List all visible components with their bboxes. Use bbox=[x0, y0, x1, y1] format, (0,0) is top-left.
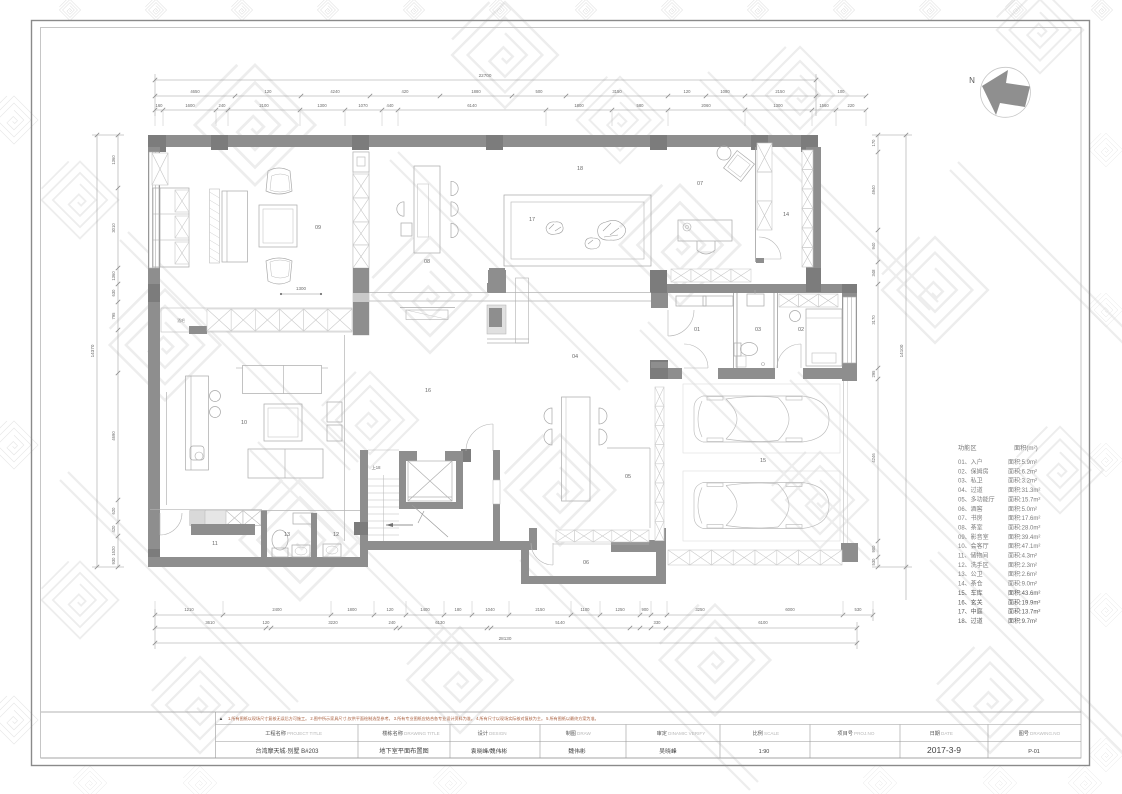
svg-text:3250: 3250 bbox=[695, 607, 705, 612]
svg-text:14100: 14100 bbox=[899, 344, 904, 357]
svg-text:1300: 1300 bbox=[773, 103, 783, 108]
svg-text:13、公卫: 13、公卫 bbox=[958, 571, 983, 578]
svg-text:面积:15.7m²: 面积:15.7m² bbox=[1008, 495, 1040, 503]
svg-text:1210: 1210 bbox=[184, 607, 194, 612]
svg-text:295: 295 bbox=[871, 370, 876, 378]
svg-text:100: 100 bbox=[838, 89, 846, 94]
svg-text:1800: 1800 bbox=[347, 607, 357, 612]
svg-text:楼栋名称: 楼栋名称 bbox=[382, 729, 403, 737]
svg-text:P-01: P-01 bbox=[1028, 749, 1040, 755]
svg-text:160: 160 bbox=[156, 103, 164, 108]
svg-text:1400: 1400 bbox=[420, 607, 430, 612]
svg-text:3150: 3150 bbox=[612, 89, 622, 94]
svg-text:设计: 设计 bbox=[478, 729, 488, 737]
svg-text:6130: 6130 bbox=[435, 620, 445, 625]
svg-text:1560: 1560 bbox=[819, 103, 829, 108]
svg-text:▲: ▲ bbox=[219, 716, 223, 721]
svg-text:1080: 1080 bbox=[720, 89, 730, 94]
svg-text:22700: 22700 bbox=[479, 73, 492, 78]
svg-text:14: 14 bbox=[783, 212, 789, 218]
svg-text:02、保姆房: 02、保姆房 bbox=[958, 467, 989, 475]
svg-text:工程名称: 工程名称 bbox=[265, 729, 286, 737]
svg-text:面积:17.6m²: 面积:17.6m² bbox=[1008, 514, 1040, 522]
svg-text:120: 120 bbox=[263, 620, 271, 625]
svg-text:面积:9.7m²: 面积:9.7m² bbox=[1008, 617, 1037, 625]
svg-text:795: 795 bbox=[111, 312, 116, 320]
svg-text:17、中庭: 17、中庭 bbox=[958, 608, 983, 616]
svg-text:面积:9.0m²: 面积:9.0m² bbox=[1008, 580, 1037, 588]
svg-text:2017-3-9: 2017-3-9 bbox=[927, 745, 961, 755]
svg-text:DRAWING TITLE: DRAWING TITLE bbox=[404, 731, 440, 736]
svg-text:面积:6.2m²: 面积:6.2m² bbox=[1008, 467, 1037, 475]
svg-text:魏伟彬: 魏伟彬 bbox=[568, 747, 586, 755]
svg-text:5140: 5140 bbox=[555, 620, 565, 625]
svg-text:4246: 4246 bbox=[871, 453, 876, 463]
svg-text:1520: 1520 bbox=[111, 546, 116, 556]
svg-text:1040: 1040 bbox=[485, 607, 495, 612]
svg-text:580: 580 bbox=[637, 103, 645, 108]
svg-text:面积:47.1m²: 面积:47.1m² bbox=[1008, 542, 1040, 550]
svg-text:6100: 6100 bbox=[758, 620, 768, 625]
svg-text:120: 120 bbox=[265, 89, 273, 94]
svg-text:DINAMIC VERIFY: DINAMIC VERIFY bbox=[668, 731, 705, 736]
svg-text:吴晓峰: 吴晓峰 bbox=[659, 747, 677, 755]
svg-text:1100: 1100 bbox=[580, 607, 590, 612]
svg-text:10: 10 bbox=[241, 420, 247, 426]
svg-text:1300: 1300 bbox=[296, 286, 307, 291]
svg-text:05、多功能厅: 05、多功能厅 bbox=[958, 495, 995, 503]
svg-text:10、会客厅: 10、会客厅 bbox=[958, 542, 989, 550]
svg-text:1800: 1800 bbox=[574, 103, 584, 108]
svg-text:N: N bbox=[969, 76, 975, 85]
svg-text:06、酒窖: 06、酒窖 bbox=[958, 505, 983, 513]
svg-text:PROJ.NO: PROJ.NO bbox=[854, 731, 875, 736]
svg-text:09、影音室: 09、影音室 bbox=[958, 533, 989, 541]
svg-text:940: 940 bbox=[871, 242, 876, 250]
svg-text:348: 348 bbox=[871, 269, 876, 277]
svg-text:面积:19.9m²: 面积:19.9m² bbox=[1008, 598, 1040, 606]
svg-text:07: 07 bbox=[697, 181, 703, 187]
svg-text:面积:31.3m²: 面积:31.3m² bbox=[1008, 486, 1040, 494]
svg-text:面积:13.7m²: 面积:13.7m² bbox=[1008, 608, 1040, 616]
svg-text:袁晓峰/魏伟彬: 袁晓峰/魏伟彬 bbox=[471, 747, 508, 755]
svg-text:04: 04 bbox=[572, 354, 578, 360]
svg-text:2060: 2060 bbox=[701, 103, 711, 108]
svg-text:28130: 28130 bbox=[499, 636, 512, 641]
svg-text:6140: 6140 bbox=[467, 103, 477, 108]
svg-text:PROJECT TITLE: PROJECT TITLE bbox=[287, 731, 322, 736]
svg-text:15: 15 bbox=[760, 458, 766, 464]
svg-text:功能区: 功能区 bbox=[958, 444, 977, 452]
svg-text:DATE: DATE bbox=[941, 731, 953, 736]
svg-text:07、书房: 07、书房 bbox=[958, 514, 983, 522]
svg-text:13: 13 bbox=[284, 532, 290, 538]
svg-text:面积:39.4m²: 面积:39.4m² bbox=[1008, 533, 1040, 541]
svg-text:2150: 2150 bbox=[535, 607, 545, 612]
svg-text:120: 120 bbox=[684, 89, 692, 94]
svg-text:05: 05 bbox=[625, 474, 631, 480]
svg-text:330: 330 bbox=[654, 620, 662, 625]
svg-text:面积(m²): 面积(m²) bbox=[1014, 444, 1038, 452]
svg-text:面积:5.9m²: 面积:5.9m² bbox=[1008, 458, 1037, 466]
svg-text:06: 06 bbox=[583, 560, 589, 566]
svg-text:12: 12 bbox=[333, 532, 339, 538]
svg-text:台湾摩天城·别墅 B#203: 台湾摩天城·别墅 B#203 bbox=[255, 747, 319, 755]
svg-text:240: 240 bbox=[389, 620, 397, 625]
svg-text:4650: 4650 bbox=[190, 89, 200, 94]
svg-text:12、洗手区: 12、洗手区 bbox=[958, 561, 989, 569]
svg-text:18、过道: 18、过道 bbox=[958, 617, 983, 625]
svg-text:04、过道: 04、过道 bbox=[958, 486, 983, 494]
svg-text:酒吧: 酒吧 bbox=[177, 318, 185, 323]
svg-text:地下室平面布置图: 地下室平面布置图 bbox=[379, 747, 429, 755]
svg-text:17: 17 bbox=[529, 217, 535, 223]
svg-text:120: 120 bbox=[387, 607, 395, 612]
svg-text:02: 02 bbox=[798, 327, 804, 333]
svg-text:3220: 3220 bbox=[328, 620, 338, 625]
svg-text:620: 620 bbox=[111, 507, 116, 515]
svg-text:900: 900 bbox=[642, 607, 650, 612]
svg-text:180: 180 bbox=[455, 607, 463, 612]
svg-text:09: 09 bbox=[315, 225, 321, 231]
svg-text:220: 220 bbox=[848, 103, 856, 108]
svg-text:日期: 日期 bbox=[930, 730, 940, 737]
svg-text:1070: 1070 bbox=[358, 103, 368, 108]
svg-text:14370: 14370 bbox=[90, 344, 95, 357]
svg-text:08、茶室: 08、茶室 bbox=[958, 523, 983, 531]
svg-text:1.所有图纸以现场尺寸复核无误后方可施工。 2.图中所: 1.所有图纸以现场尺寸复核无误后方可施工。 2.图中所示家具尺寸,仅供平面绘制选… bbox=[228, 715, 599, 721]
svg-text:530: 530 bbox=[855, 607, 863, 612]
svg-text:03、私卫: 03、私卫 bbox=[958, 477, 983, 485]
svg-text:面积:2.6m²: 面积:2.6m² bbox=[1008, 570, 1037, 578]
svg-text:11: 11 bbox=[212, 541, 218, 547]
svg-text:4690: 4690 bbox=[111, 431, 116, 441]
svg-text:面积:43.6m²: 面积:43.6m² bbox=[1008, 589, 1040, 597]
svg-text:630: 630 bbox=[111, 289, 116, 297]
svg-text:制图: 制图 bbox=[566, 729, 576, 737]
svg-text:2150: 2150 bbox=[775, 89, 785, 94]
svg-text:DRAWING.NO: DRAWING.NO bbox=[1030, 731, 1061, 736]
svg-text:1:90: 1:90 bbox=[759, 749, 770, 755]
svg-text:16: 16 bbox=[425, 388, 431, 394]
svg-text:18: 18 bbox=[577, 166, 583, 172]
svg-text:530: 530 bbox=[871, 558, 876, 566]
svg-text:面积:28.0m²: 面积:28.0m² bbox=[1008, 523, 1040, 531]
svg-text:14、茶仓: 14、茶仓 bbox=[958, 580, 983, 588]
svg-text:4240: 4240 bbox=[330, 89, 340, 94]
svg-text:01: 01 bbox=[694, 327, 700, 333]
svg-text:3170: 3170 bbox=[871, 315, 876, 325]
svg-text:3010: 3010 bbox=[111, 223, 116, 233]
svg-text:面积:2.3m²: 面积:2.3m² bbox=[1008, 561, 1037, 569]
svg-text:420: 420 bbox=[402, 89, 410, 94]
svg-text:440: 440 bbox=[387, 103, 395, 108]
svg-text:面积:4.3m²: 面积:4.3m² bbox=[1008, 552, 1037, 560]
svg-text:1880: 1880 bbox=[471, 89, 481, 94]
svg-text:900: 900 bbox=[871, 545, 876, 553]
svg-text:3610: 3610 bbox=[205, 620, 215, 625]
svg-text:1360: 1360 bbox=[111, 155, 116, 165]
svg-text:240: 240 bbox=[219, 103, 227, 108]
svg-text:16、玄关: 16、玄关 bbox=[958, 598, 983, 606]
svg-text:面积:3.2m²: 面积:3.2m² bbox=[1008, 477, 1037, 485]
svg-text:项目号: 项目号 bbox=[837, 730, 853, 737]
svg-text:6000: 6000 bbox=[785, 607, 795, 612]
svg-text:DRAW: DRAW bbox=[577, 731, 592, 736]
svg-text:比例: 比例 bbox=[753, 729, 763, 737]
svg-text:上18: 上18 bbox=[372, 464, 382, 470]
svg-text:11、储物间: 11、储物间 bbox=[958, 552, 988, 560]
svg-text:2400: 2400 bbox=[272, 607, 282, 612]
svg-text:01、入户: 01、入户 bbox=[958, 458, 983, 466]
svg-text:2100: 2100 bbox=[259, 103, 269, 108]
svg-text:170: 170 bbox=[871, 139, 876, 147]
svg-text:1600: 1600 bbox=[185, 103, 195, 108]
svg-text:4940: 4940 bbox=[871, 185, 876, 195]
svg-text:1300: 1300 bbox=[317, 103, 327, 108]
svg-text:面积:5.0m²: 面积:5.0m² bbox=[1008, 505, 1037, 513]
svg-text:420: 420 bbox=[111, 525, 116, 533]
svg-text:930: 930 bbox=[111, 557, 116, 565]
svg-text:15、车库: 15、车库 bbox=[958, 589, 983, 597]
svg-text:1250: 1250 bbox=[615, 607, 625, 612]
svg-text:审定: 审定 bbox=[657, 729, 667, 737]
svg-text:1360: 1360 bbox=[111, 271, 116, 281]
svg-text:图号: 图号 bbox=[1019, 730, 1029, 737]
svg-text:03: 03 bbox=[755, 327, 761, 333]
svg-text:SCALE: SCALE bbox=[764, 731, 779, 736]
svg-text:08: 08 bbox=[424, 259, 430, 265]
svg-text:DESIGN: DESIGN bbox=[489, 731, 507, 736]
svg-text:500: 500 bbox=[536, 89, 544, 94]
